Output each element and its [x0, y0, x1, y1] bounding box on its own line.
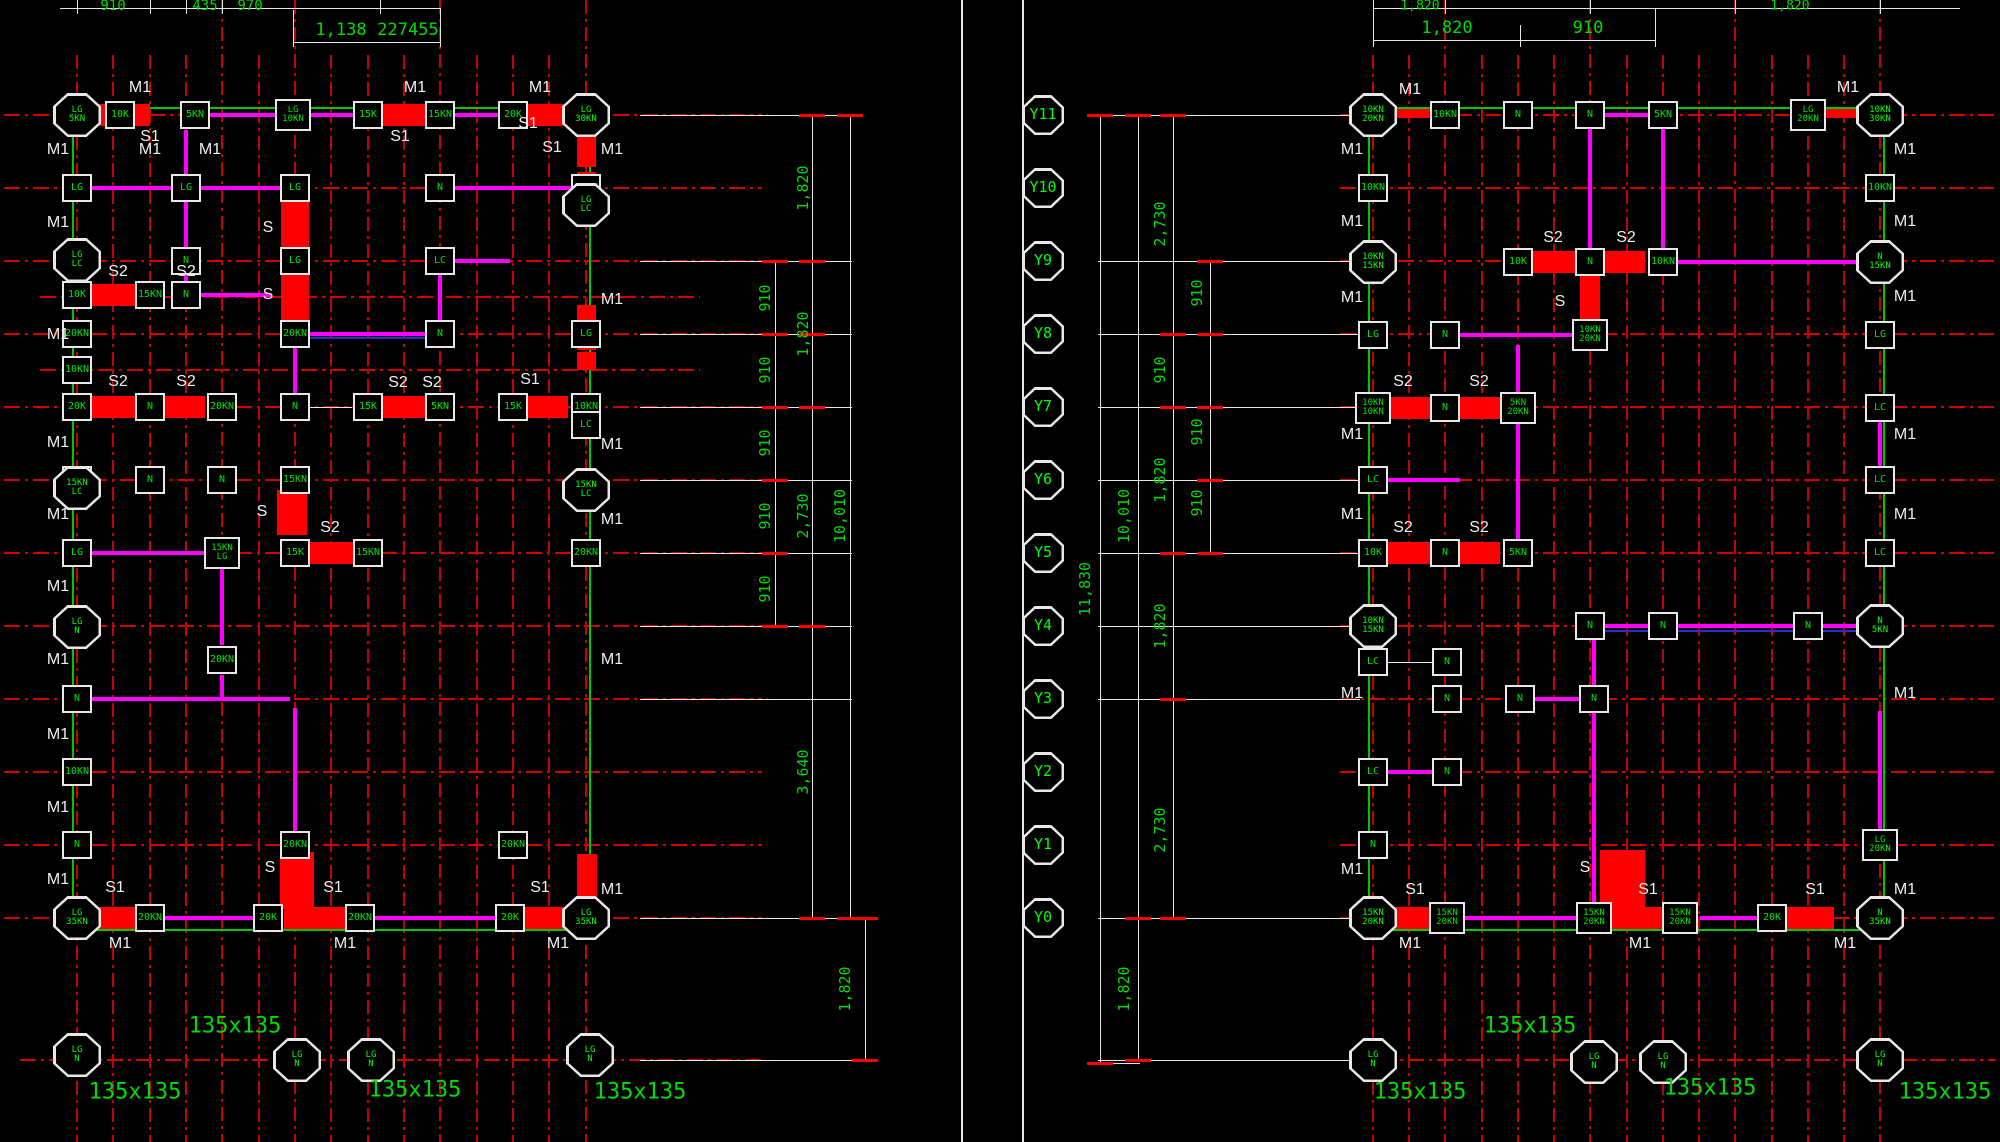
load-box: LG — [62, 174, 92, 202]
dim-text: 135x135 — [1484, 1014, 1577, 1039]
column-fill — [280, 852, 314, 909]
grid-line — [4, 844, 762, 846]
dim-line — [775, 261, 776, 626]
load-box: 5KN — [180, 101, 210, 129]
beam-line — [1516, 420, 1520, 541]
load-box: LC — [571, 411, 601, 439]
grid-bubble: 10KN30KN — [1856, 93, 1904, 137]
label: S1 — [1638, 881, 1658, 899]
grid-line — [1807, 55, 1809, 1142]
dim-tick — [762, 625, 788, 628]
column-fill — [1383, 542, 1433, 564]
dim-line — [1520, 25, 1521, 47]
beam-line — [305, 332, 428, 336]
grid-bubble-text: LGN — [56, 1036, 99, 1075]
load-label: 20KN — [348, 913, 372, 923]
grid-bubble-text: LGN — [1352, 1041, 1395, 1080]
load-box: 10KN — [1358, 174, 1388, 202]
load-box: 20KN — [135, 904, 165, 932]
grid-bubble: LG30KN — [562, 93, 610, 137]
column-fill — [281, 270, 309, 322]
load-label: 10KN — [65, 767, 89, 777]
dim-text: 1,820 — [1151, 603, 1169, 648]
load-box: N — [62, 685, 92, 713]
dim-line — [1098, 553, 1360, 554]
grid-bubble-text: 10KN20KN — [1352, 96, 1395, 135]
label: S1 — [105, 879, 125, 897]
grid-bubble: LGN — [347, 1038, 395, 1082]
grid-bubble-text: LGN — [56, 608, 99, 647]
load-box: N — [1358, 831, 1388, 859]
load-box: N — [62, 831, 92, 859]
grid-line — [367, 55, 369, 1142]
dim-line — [1098, 480, 1360, 481]
label: M1 — [1341, 506, 1363, 524]
load-label: 15KN — [428, 110, 452, 120]
grid-bubble: LGN — [273, 1038, 321, 1082]
label: M1 — [1399, 935, 1421, 953]
label: S1 — [1805, 881, 1825, 899]
label: M1 — [1629, 935, 1651, 953]
load-box: 20K — [62, 393, 92, 421]
wall-line — [589, 112, 591, 922]
dim-text: 135x135 — [594, 1080, 687, 1105]
dim-text: 1,820 — [794, 311, 812, 356]
grid-line — [1444, 0, 1446, 1142]
load-label: LC — [1367, 475, 1379, 485]
dim-line — [1880, 0, 1881, 14]
grid-bubble-text: LG5KN — [56, 96, 99, 135]
grid-line — [258, 55, 260, 1142]
beam-line — [1460, 916, 1588, 920]
load-label: LG — [1367, 330, 1379, 340]
load-box: LG20KN — [1790, 99, 1826, 131]
dim-text: 910 — [1573, 18, 1604, 38]
dim-line — [1735, 0, 1736, 14]
load-label: 15KN — [138, 290, 162, 300]
dim-line — [222, 0, 223, 14]
dim-text: 227455 — [377, 20, 438, 40]
dim-text: 1,820 — [1770, 0, 1809, 14]
beam-line — [1675, 260, 1862, 264]
y-axis-bubble: Y9 — [1022, 241, 1064, 281]
grid-line — [112, 55, 114, 1142]
label: M1 — [404, 79, 426, 97]
load-box: 5KN — [425, 393, 455, 421]
dim-text: 11,830 — [1076, 562, 1094, 616]
beam-line — [165, 916, 255, 920]
label: M1 — [47, 578, 69, 596]
load-label: 10KN — [282, 115, 304, 124]
load-label: LG — [71, 183, 83, 193]
y-axis-bubble: Y8 — [1022, 314, 1064, 354]
load-box: LC — [1865, 466, 1895, 494]
label: M1 — [1837, 79, 1859, 97]
dim-line — [1385, 662, 1435, 663]
label: M1 — [1894, 141, 1916, 159]
load-label: 20KN — [210, 655, 234, 665]
load-box: LC — [425, 247, 455, 275]
load-label: N — [1442, 330, 1448, 340]
grid-bubble: N5KN — [1856, 604, 1904, 648]
load-box: LG — [171, 174, 201, 202]
column-fill — [1580, 272, 1600, 324]
grid-bubble-text: LG35KN — [565, 899, 608, 938]
label: M1 — [1341, 213, 1363, 231]
beam-line — [90, 186, 180, 190]
dim-tick — [762, 406, 788, 409]
wall-line — [1368, 112, 1370, 922]
grid-line — [149, 55, 151, 1142]
dim-text: 1,820 — [1151, 457, 1169, 502]
load-label: 20KN — [1507, 408, 1529, 417]
label: S1 — [520, 371, 540, 389]
label: S2 — [1393, 519, 1413, 537]
grid-bubble: LGN — [53, 605, 101, 649]
label: M1 — [1894, 426, 1916, 444]
load-box: N — [425, 174, 455, 202]
dim-line — [186, 0, 187, 14]
load-box: 15K — [353, 393, 383, 421]
load-label: 20KN — [210, 402, 234, 412]
load-label: 20KN — [138, 913, 162, 923]
load-box: N — [135, 393, 165, 421]
column-fill — [1600, 850, 1645, 910]
y-axis-bubble: Y10 — [1022, 168, 1064, 208]
load-box: 20KN — [280, 320, 310, 348]
load-box: 10K — [62, 281, 92, 309]
dim-line — [1098, 407, 1360, 408]
load-box: LG10KN — [275, 99, 311, 131]
label: S1 — [390, 128, 410, 146]
dim-tick — [1160, 917, 1186, 920]
y-axis-label: Y0 — [1025, 901, 1062, 936]
dim-text: 135x135 — [89, 1080, 182, 1105]
grid-line — [1553, 55, 1555, 1142]
grid-line — [439, 0, 441, 1142]
load-label: N — [1515, 110, 1521, 120]
load-box: LG — [280, 174, 310, 202]
label: S2 — [176, 263, 196, 281]
grid-bubble: 15KN20KN — [1349, 896, 1397, 940]
load-label: 10K — [1509, 257, 1527, 267]
dim-line — [293, 10, 294, 47]
grid-line — [1408, 55, 1410, 1142]
label: M1 — [47, 141, 69, 159]
load-box: 15K — [280, 539, 310, 567]
grid-line — [1517, 55, 1519, 1142]
load-label: 10KN — [1362, 408, 1384, 417]
dim-tick — [1197, 406, 1223, 409]
grid-line — [1340, 187, 1996, 189]
column-fill — [277, 490, 307, 535]
load-box: N — [1430, 539, 1460, 567]
load-box: 5KN — [1648, 101, 1678, 129]
dim-text: 1,820 — [1115, 966, 1133, 1011]
column-fill — [1455, 397, 1500, 419]
load-label: 20K — [259, 913, 277, 923]
load-box: 15KNLG — [204, 537, 240, 569]
load-label: N — [183, 290, 189, 300]
label: M1 — [47, 799, 69, 817]
dim-text: 10,010 — [831, 489, 849, 543]
load-label: 20KN — [283, 840, 307, 850]
grid-bubble: LG35KN — [53, 896, 101, 940]
grid-line — [1734, 0, 1736, 1142]
cad-canvas[interactable]: 10K5KNLG10KN15K15KN20KLGLGLGN10KNNLGLC10… — [0, 0, 2000, 1142]
label: M1 — [601, 291, 623, 309]
dim-text: 1,820 — [1421, 18, 1472, 38]
load-label: LC — [1367, 767, 1379, 777]
label: M1 — [47, 434, 69, 452]
load-box: 10K — [1358, 539, 1388, 567]
load-box: LG — [571, 320, 601, 348]
grid-bubble: N15KN — [1856, 240, 1904, 284]
load-label: 15K — [286, 548, 304, 558]
dim-text: 910 — [1188, 418, 1206, 445]
label: M1 — [1894, 506, 1916, 524]
dim-line — [1098, 626, 1360, 627]
load-box: LG — [1865, 321, 1895, 349]
label: M1 — [601, 436, 623, 454]
dim-line — [1590, 0, 1591, 14]
label: M1 — [547, 935, 569, 953]
load-label: LC — [1874, 403, 1886, 413]
label: M1 — [129, 79, 151, 97]
dim-line — [150, 0, 151, 14]
beam-line — [1532, 697, 1582, 701]
load-box: N — [1575, 101, 1605, 129]
dim-line — [640, 1060, 867, 1061]
load-box: N — [1432, 758, 1462, 786]
load-label: N — [1444, 767, 1450, 777]
beam-line — [1516, 345, 1520, 396]
dim-line — [310, 407, 352, 408]
load-label: LG — [1874, 330, 1886, 340]
label: M1 — [601, 881, 623, 899]
grid-bubble: 15KNLC — [53, 466, 101, 510]
beam-line — [90, 697, 290, 701]
load-label: N — [1442, 548, 1448, 558]
load-label: N — [1591, 694, 1597, 704]
label: M1 — [47, 871, 69, 889]
y-axis-bubble: Y2 — [1022, 752, 1064, 792]
load-box: 10KN20KN — [1572, 319, 1608, 351]
grid-bubble: LGN — [1349, 1038, 1397, 1082]
dim-line — [961, 0, 963, 1142]
label: S2 — [1469, 519, 1489, 537]
dim-tick — [1087, 1062, 1113, 1065]
dim-text: 970 — [237, 0, 262, 14]
dim-text: 135x135 — [189, 1014, 282, 1039]
grid-bubble: 10KN15KN — [1349, 604, 1397, 648]
dim-text: 135x135 — [1664, 1076, 1757, 1101]
grid-line — [4, 771, 762, 773]
dim-tick — [852, 1059, 878, 1062]
grid-line — [548, 55, 550, 1142]
dim-tick — [1160, 698, 1186, 701]
label: S — [263, 219, 274, 237]
load-box: 15KN — [135, 281, 165, 309]
load-label: N — [1517, 694, 1523, 704]
label: S2 — [422, 374, 442, 392]
grid-line — [512, 55, 514, 1142]
y-axis-label: Y9 — [1025, 244, 1062, 279]
beam-line-blue — [305, 337, 428, 339]
load-box: 15KN20KN — [1429, 902, 1465, 934]
beam-line — [1605, 624, 1862, 628]
dim-text: 2,730 — [794, 493, 812, 538]
dim-tick — [1197, 552, 1223, 555]
dim-line — [640, 553, 852, 554]
dim-tick — [799, 406, 825, 409]
dim-tick — [1087, 114, 1113, 117]
dim-text: 910 — [100, 0, 125, 14]
dim-tick — [799, 625, 825, 628]
load-label: 20KN — [1436, 918, 1458, 927]
load-label: N — [1442, 403, 1448, 413]
load-label: N — [74, 840, 80, 850]
grid-bubble: LG5KN — [53, 93, 101, 137]
label: S2 — [1393, 373, 1413, 391]
load-label: LG — [217, 553, 228, 562]
dim-line — [865, 918, 866, 1060]
wall-line — [1883, 112, 1885, 922]
beam-line — [1385, 478, 1460, 482]
load-box: N — [135, 466, 165, 494]
column-fill — [1455, 542, 1500, 564]
grid-bubble: LGN — [1570, 1040, 1618, 1084]
beam-line — [375, 916, 508, 920]
load-label: LC — [1874, 548, 1886, 558]
dim-tick — [799, 114, 825, 117]
y-axis-label: Y8 — [1025, 317, 1062, 352]
beam-line — [1878, 711, 1882, 832]
label: S2 — [1543, 229, 1563, 247]
grid-bubble-text: LGN — [350, 1041, 393, 1080]
grid-bubble-text: 10KN15KN — [1352, 243, 1395, 282]
load-box: 15KN20KN — [1576, 902, 1612, 934]
grid-line — [1879, 0, 1881, 1142]
label: S1 — [530, 879, 550, 897]
dim-text: 910 — [756, 575, 774, 602]
load-label: N — [1587, 621, 1593, 631]
load-box: N — [1432, 648, 1462, 676]
dim-text: 910 — [1151, 356, 1169, 383]
grid-line — [1698, 55, 1700, 1142]
label: S2 — [1469, 373, 1489, 391]
load-box: LC — [1358, 466, 1388, 494]
load-box: N — [1430, 321, 1460, 349]
load-label: 20K — [1763, 913, 1781, 923]
load-box: N — [1648, 612, 1678, 640]
beam-line — [1878, 420, 1882, 468]
load-label: N — [147, 402, 153, 412]
load-box: N — [1575, 248, 1605, 276]
column-fill — [577, 352, 596, 370]
grid-bubble-text: LGN — [276, 1041, 319, 1080]
load-box: N — [1432, 685, 1462, 713]
grid-line — [476, 55, 478, 1142]
beam-line — [220, 565, 224, 645]
load-label: N — [74, 694, 80, 704]
y-axis-bubble: Y5 — [1022, 533, 1064, 573]
load-label: N — [1805, 621, 1811, 631]
dim-tick — [1125, 917, 1151, 920]
dim-text: 135x135 — [1899, 1080, 1992, 1105]
label: S — [1555, 293, 1566, 311]
grid-bubble-text: 15KNLC — [565, 471, 608, 510]
dim-line — [1373, 12, 1374, 47]
label: M1 — [1894, 881, 1916, 899]
load-label: LG — [71, 548, 83, 558]
load-label: N — [292, 402, 298, 412]
beam-line — [1605, 113, 1650, 117]
dim-tick — [762, 333, 788, 336]
dim-tick — [1197, 333, 1223, 336]
dim-text: 3,640 — [794, 749, 812, 794]
grid-line — [1481, 55, 1483, 1142]
beam-line — [455, 259, 510, 263]
label: M1 — [601, 141, 623, 159]
load-label: LC — [1367, 657, 1379, 667]
grid-line — [1626, 55, 1628, 1142]
label: M1 — [47, 214, 69, 232]
grid-bubble-text: LGN — [1573, 1043, 1616, 1082]
label: S — [263, 286, 274, 304]
grid-bubble: LGN — [566, 1033, 614, 1077]
load-box: LC — [1358, 758, 1388, 786]
grid-line — [40, 369, 700, 371]
dim-line — [1373, 8, 1960, 9]
dim-tick — [1160, 406, 1186, 409]
grid-bubble-text: 15KNLC — [56, 469, 99, 508]
grid-line — [1771, 55, 1773, 1142]
y-axis-label: Y5 — [1025, 536, 1062, 571]
load-box: N — [1505, 685, 1535, 713]
label: S2 — [1616, 229, 1636, 247]
load-box: N — [425, 320, 455, 348]
dim-text: 910 — [756, 429, 774, 456]
load-label: 15KN — [356, 548, 380, 558]
load-label: N — [1660, 621, 1666, 631]
dim-tick — [762, 260, 788, 263]
load-label: 15K — [504, 402, 522, 412]
label: S — [265, 859, 276, 877]
y-axis-bubble: Y0 — [1022, 898, 1064, 938]
load-label: 10K — [68, 290, 86, 300]
load-box: 10KN — [1865, 174, 1895, 202]
load-box: N — [1575, 612, 1605, 640]
load-label: 15K — [359, 110, 377, 120]
beam-line — [293, 345, 297, 396]
label: M1 — [199, 141, 221, 159]
y-axis-bubble: Y6 — [1022, 460, 1064, 500]
column-fill — [307, 542, 357, 564]
label: M1 — [47, 506, 69, 524]
column-fill — [281, 196, 309, 248]
load-box: 20K — [1757, 904, 1787, 932]
dim-text: 1,820 — [836, 966, 854, 1011]
grid-bubble: LGN — [53, 1033, 101, 1077]
grid-bubble-text: 10KN30KN — [1859, 96, 1902, 135]
beam-line — [1460, 333, 1580, 337]
dim-tick — [1197, 260, 1223, 263]
label: M1 — [1894, 288, 1916, 306]
column-fill — [1606, 907, 1668, 929]
load-label: 20KN — [283, 329, 307, 339]
load-box: 10KN — [1430, 101, 1460, 129]
